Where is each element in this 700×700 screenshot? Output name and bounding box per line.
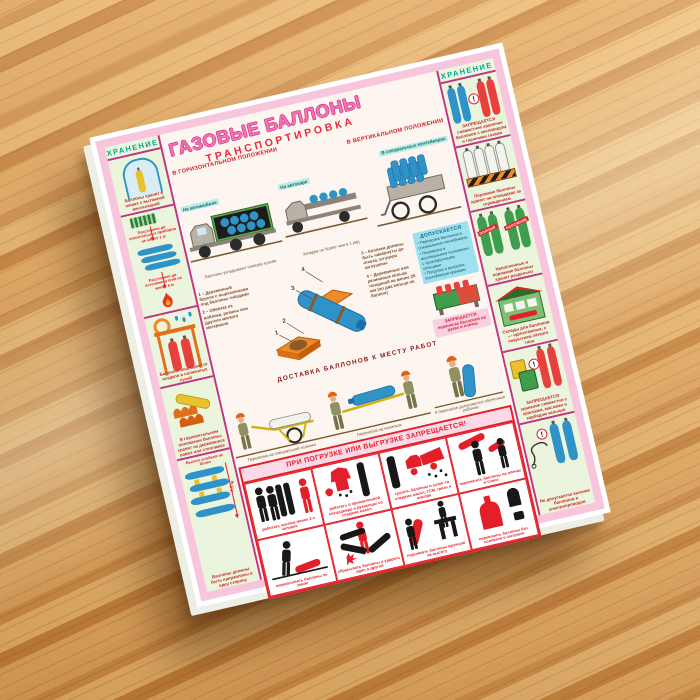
svg-text:2: 2 bbox=[282, 318, 287, 325]
stack-caption: Баллоны должны быть направлены в одну ст… bbox=[206, 564, 258, 590]
svg-text:1: 1 bbox=[274, 330, 279, 337]
rain-drop-2 bbox=[182, 317, 186, 323]
wooden-rack-icon bbox=[165, 383, 222, 431]
svg-text:3: 3 bbox=[291, 285, 296, 292]
panel-paints: ! ЗАПРЕЩАЕТСЯ хранение совместно с краск… bbox=[503, 341, 574, 426]
rain-drop-3 bbox=[188, 311, 192, 317]
canister-green-icon bbox=[518, 369, 539, 392]
wires-caption: Не допускается касание баллонов и электр… bbox=[539, 487, 593, 513]
stack-height-value: 1,5 м bbox=[229, 481, 234, 492]
gas-cylinders-safety-poster: ХРАНЕНИЕ Баллоны хранят в нишах с вытяжн… bbox=[89, 42, 611, 607]
rain-drop-1 bbox=[175, 316, 179, 322]
wooden-desk-background: ХРАНЕНИЕ Баллоны хранят в нишах с вытяжн… bbox=[0, 0, 700, 700]
poster-sheet: ХРАНЕНИЕ Баллоны хранят в нишах с вытяжн… bbox=[89, 42, 611, 607]
svg-text:4: 4 bbox=[301, 267, 306, 274]
stack-cylinder-4 bbox=[195, 503, 236, 519]
flame-icon bbox=[157, 290, 179, 312]
warning-mark: ! bbox=[472, 94, 476, 103]
warning-mark: ! bbox=[532, 359, 536, 368]
panel-mixed-gases: ! ЗАПРЕЩАЕТСЯ совместное хранение баллон… bbox=[441, 72, 510, 149]
poster-content: ХРАНЕНИЕ Баллоны хранят в нишах с вытяжн… bbox=[105, 58, 595, 592]
panel-fenced-area: Порожние баллоны хранят на площадках за … bbox=[456, 136, 525, 213]
warning-mark: ! bbox=[540, 429, 544, 438]
